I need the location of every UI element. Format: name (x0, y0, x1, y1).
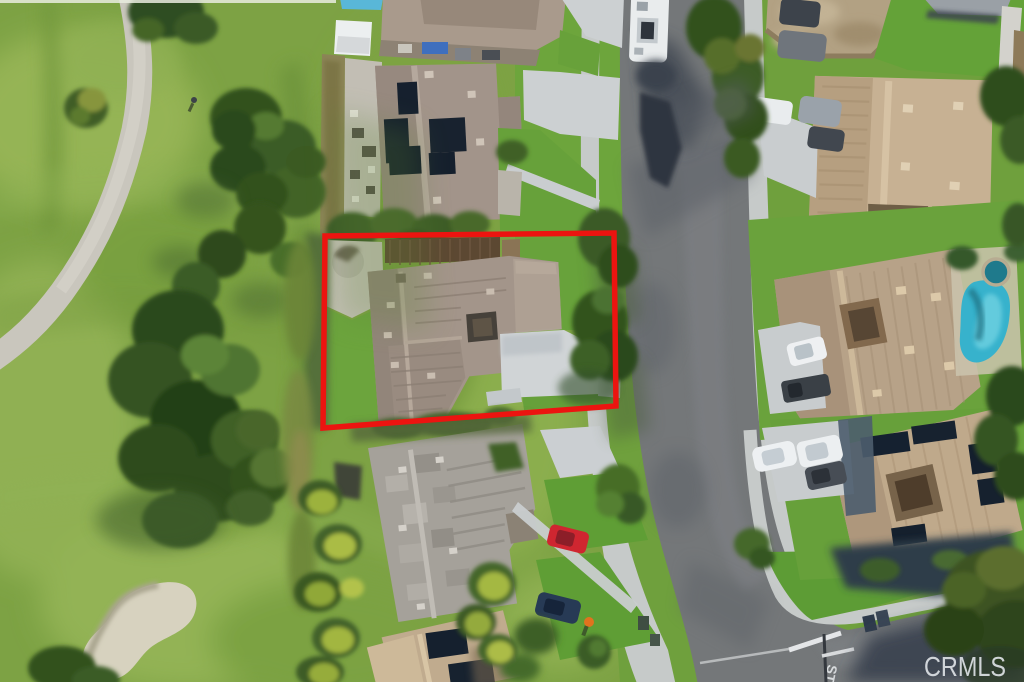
svg-text:CRMLS: CRMLS (924, 651, 1006, 682)
